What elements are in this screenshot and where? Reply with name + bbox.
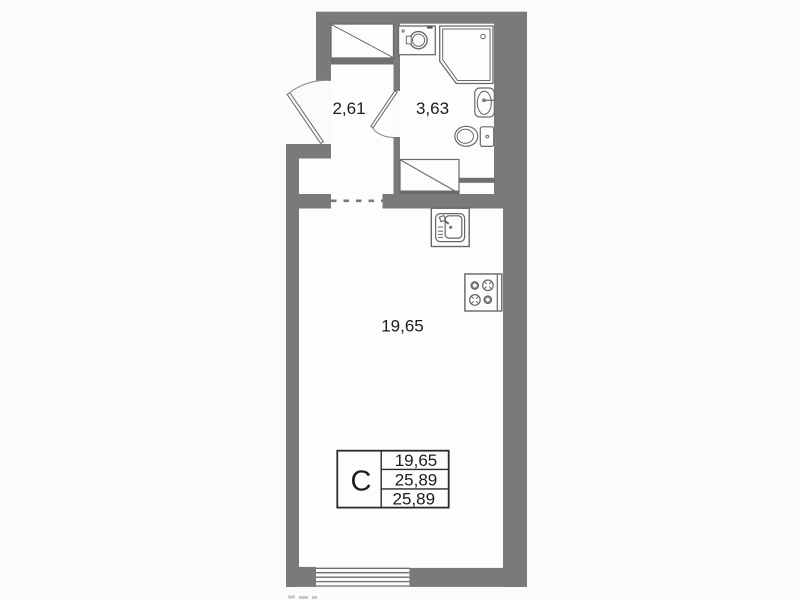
svg-text:25,89: 25,89 [393, 490, 436, 509]
svg-text:2,61: 2,61 [332, 99, 365, 118]
svg-text:C: C [351, 466, 372, 498]
svg-text:19,65: 19,65 [395, 451, 438, 470]
svg-text:3,63: 3,63 [416, 99, 449, 118]
svg-text:25,89: 25,89 [395, 470, 438, 489]
svg-text:19,65: 19,65 [381, 317, 424, 336]
